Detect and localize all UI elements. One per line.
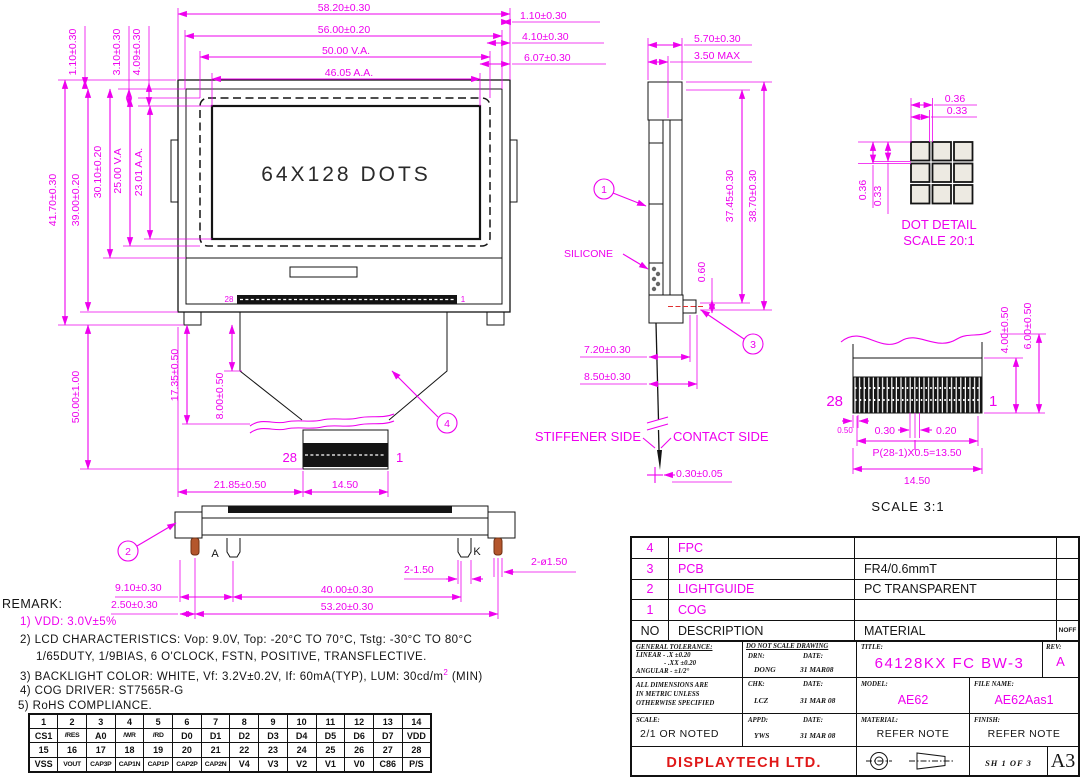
tolerance-title: GENERAL TOLERANCE: [636, 644, 712, 651]
model-cell: MODEL: AE62 [857, 678, 970, 714]
pin-cell: CAP1N [115, 757, 144, 772]
dim-fpc-width: 14.50 [904, 475, 930, 487]
rev-label: REV: [1046, 644, 1061, 651]
bom-header-row: NO DESCRIPTION MATERIAL NOFF [632, 621, 1078, 642]
rev-value: A [1043, 654, 1078, 669]
pin-cell: 9 [259, 714, 288, 729]
pin-cell: 11 [316, 714, 345, 729]
fpc-detail: 28 1 4.00±0.50 6.00±0.50 0.50 0.30 0.20 … [826, 303, 1046, 514]
pin-cell: 1 [29, 714, 58, 729]
pin-cell: 6 [173, 714, 202, 729]
pin-cell: V4 [230, 757, 259, 772]
pin-cell: 4 [115, 714, 144, 729]
bom-header-description: DESCRIPTION [669, 621, 855, 640]
callout-2: 2 [125, 546, 131, 558]
bond-pin-1: 1 [461, 295, 466, 304]
dim-tail-8: 8.00±0.50 [214, 373, 226, 420]
pin-cell: CAP3P [86, 757, 115, 772]
front-view-dimensions: 58.20±0.30 56.00±0.20 50.00 V.A. 46.05 A… [47, 2, 606, 497]
pin-cell: 10 [287, 714, 316, 729]
bom-description: COG [669, 600, 855, 620]
dim-va-height: 25.00 V.A [112, 148, 124, 193]
dim-dot-width-v: 0.33 [872, 186, 884, 207]
bom-qty [1057, 580, 1078, 600]
metric-note-3: OTHERWISE SPECIFIED [636, 700, 714, 707]
pin-cell: 26 [345, 743, 374, 757]
chk-date-label: DATE: [803, 681, 823, 688]
pin-cell: 12 [345, 714, 374, 729]
dim-8p50: 8.50±0.30 [584, 371, 631, 383]
dim-tail-17: 17.35±0.50 [169, 349, 181, 402]
dim-37p45: 37.45±0.30 [724, 170, 736, 223]
dim-overall-height: 41.70±0.30 [47, 174, 59, 227]
finish-value: REFER NOTE [970, 728, 1078, 740]
bom-no: 2 [632, 580, 669, 600]
dim-fpc-pin-width: 0.30 [875, 425, 896, 437]
pin-cell: 18 [115, 743, 144, 757]
drn-cell: DO NOT SCALE DRAWING DRN: DATE: DONG 31 … [743, 642, 857, 678]
dim-40p00: 40.00±0.30 [321, 584, 374, 596]
dot-detail-title: DOT DETAIL [901, 217, 976, 232]
bom-description: LIGHTGUIDE [669, 580, 855, 600]
pin-cell: 7 [201, 714, 230, 729]
bom-material: FR4/0.6mmT [855, 559, 1057, 579]
material-value: REFER NOTE [857, 728, 969, 740]
company-name: DISPLAYTECH LTD. [632, 755, 856, 771]
remark-line-3: 3) BACKLIGHT COLOR: WHITE, Vf: 3.2V±0.2V… [20, 668, 483, 683]
bom-qty [1057, 538, 1078, 558]
appd-label: APPD: [748, 717, 768, 724]
fpc-pin-28-detail: 28 [826, 393, 843, 410]
dim-6p07: 6.07±0.30 [524, 52, 571, 64]
dim-0p60: 0.60 [696, 262, 708, 283]
dim-fpc-4: 4.00±0.50 [999, 307, 1011, 354]
bom-header-no: NO [632, 621, 669, 640]
pin-assignment-table: 1234567891011121314 CS1/RESA0/WR/RDD0D1D… [28, 713, 432, 773]
bom-header-qty: NOFF [1057, 621, 1078, 640]
dim-overall-width: 58.20±0.30 [318, 2, 371, 14]
pin-cell: D4 [287, 729, 316, 743]
screen-area-label: 64X128 DOTS [261, 163, 431, 186]
paper-size: A3 [1048, 750, 1078, 773]
dot-detail-scale: SCALE 20:1 [903, 233, 975, 248]
silicone-dots [652, 267, 660, 291]
drn-date-value: 31 MAR08 [800, 665, 834, 674]
remark-line-4: 4) COG DRIVER: ST7565R-G [20, 685, 184, 697]
chk-value: LCZ [754, 696, 768, 705]
dim-4p10: 4.10±0.30 [522, 31, 569, 43]
dim-fpc-gap: 0.20 [936, 425, 957, 437]
pin-cell: D1 [201, 729, 230, 743]
pin-signal-row-2: VSSVOUTCAP3PCAP1NCAP1PCAP2PCAP2NV4V3V2V1… [29, 757, 431, 772]
pin-cell: 22 [230, 743, 259, 757]
dim-depth: 5.70±0.30 [694, 33, 741, 45]
bom-description: FPC [669, 538, 855, 558]
pin-cell: 8 [230, 714, 259, 729]
dim-boss-pin: 2-ø1.50 [531, 556, 567, 568]
pin-number-row-2: 1516171819202122232425262728 [29, 743, 431, 757]
remark-title: REMARK: [2, 597, 62, 611]
title-label: TITLE: [861, 644, 883, 651]
pin-cell: /WR [115, 729, 144, 743]
bom-table: 4 FPC 3 PCB FR4/0.6mmT 2 LIGHTGUIDE PC T… [632, 538, 1078, 642]
dim-dot-pitch-v: 0.36 [857, 180, 869, 201]
fpc-pin-1-detail: 1 [989, 393, 997, 410]
metric-note-2: IN METRIC UNLESS [636, 691, 699, 698]
pin-cell: /RD [144, 729, 173, 743]
dim-top-offset-2: 3.10±0.30 [111, 29, 123, 76]
pin-cell: 19 [144, 743, 173, 757]
pin-cell: 20 [173, 743, 202, 757]
bom-no: 1 [632, 600, 669, 620]
drn-value: DONG [754, 665, 776, 674]
file-name-value: AE62Aas1 [970, 693, 1078, 707]
dim-led-pin: 2-1.50 [404, 564, 434, 576]
pin-cell: 27 [373, 743, 402, 757]
pin-cell: V3 [259, 757, 288, 772]
dim-9p10: 9.10±0.30 [115, 582, 162, 594]
file-cell: FILE NAME: AE62Aas1 [970, 678, 1078, 714]
dim-thickness-max: 3.50 MAX [694, 50, 740, 62]
scale-label: SCALE: [636, 717, 660, 724]
bom-qty [1057, 600, 1078, 620]
file-name-label: FILE NAME: [974, 681, 1014, 688]
callout-3: 3 [750, 339, 756, 351]
dim-dot-width-h: 0.33 [947, 105, 968, 117]
pin-cell: 14 [402, 714, 431, 729]
pin-cell: 2 [58, 714, 87, 729]
dot-detail: 0.36 0.33 0.36 0.33 DOT DETAIL SCALE 20:… [857, 93, 977, 248]
pin-cell: V1 [316, 757, 345, 772]
dim-53p20: 53.20±0.30 [321, 601, 374, 613]
pin-cell: D0 [173, 729, 202, 743]
pin-cell: D6 [345, 729, 374, 743]
bom-material [855, 600, 1057, 620]
remark-line-1: 1) VDD: 3.0V±5% [20, 616, 117, 628]
metric-note-cell: ALL DIMENSIONS ARE IN METRIC UNLESS OTHE… [632, 678, 743, 714]
tolerance-linear: LINEAR - .X ±0.20 [636, 652, 691, 659]
pin-cell: 28 [402, 743, 431, 757]
scale-cell: SCALE: 2/1 OR NOTED [632, 714, 743, 747]
dim-38p70: 38.70±0.30 [747, 170, 759, 223]
dim-dot-pitch-h: 0.36 [945, 93, 966, 105]
appd-date-value: 31 MAR 08 [800, 731, 835, 740]
drn-date-label: DATE: [803, 653, 823, 660]
bom-row-pcb: 3 PCB FR4/0.6mmT [632, 559, 1078, 580]
remark-line-2b: 1/65DUTY, 1/9BIAS, 6 O'CLOCK, FSTN, POSI… [36, 651, 427, 663]
bom-description: PCB [669, 559, 855, 579]
dim-7p20: 7.20±0.30 [584, 344, 631, 356]
tolerance-angular: ANGULAR - ±1/2° [636, 668, 689, 675]
dim-fpc-pitch: P(28-1)X0.5=13.50 [872, 447, 961, 459]
dim-height-39: 39.00±0.20 [70, 174, 82, 227]
title-cell: TITLE: 64128KX FC BW-3 [857, 642, 1043, 678]
pin-cell: V2 [287, 757, 316, 772]
dim-fpc-6: 6.00±0.50 [1022, 303, 1034, 350]
title-block: GENERAL TOLERANCE: LINEAR - .X ±0.20 - .… [632, 642, 1078, 775]
sheet-number: SH 1 OF 3 [970, 758, 1047, 768]
silicone-label: SILICONE [564, 248, 613, 260]
tolerance-cell: GENERAL TOLERANCE: LINEAR - .X ±0.20 - .… [632, 642, 743, 678]
pin-cell: V0 [345, 757, 374, 772]
metric-note-1: ALL DIMENSIONS ARE [636, 682, 708, 689]
pin-cell: CAP1P [144, 757, 173, 772]
callout-1: 1 [601, 184, 607, 196]
dim-fpc-margin: 0.50 [837, 426, 853, 435]
drawing-title: 64128KX FC BW-3 [857, 655, 1042, 672]
fpc-pin-28: 28 [283, 450, 297, 465]
bom-material: PC TRANSPARENT [855, 580, 1057, 600]
appd-date-label: DATE: [803, 717, 823, 724]
do-not-scale-note: DO NOT SCALE DRAWING [746, 643, 828, 650]
pin-cell: CAP2P [173, 757, 202, 772]
finish-cell: FINISH: REFER NOTE [970, 714, 1078, 747]
dim-21p85: 21.85±0.50 [214, 479, 267, 491]
company-cell: DISPLAYTECH LTD. [632, 747, 857, 775]
dim-1p10: 1.10±0.30 [520, 10, 567, 22]
engineering-drawing-sheet: 64X128 DOTS 58.20±0.30 56.00±0.20 50.00 … [0, 0, 1080, 777]
dim-2p50: 2.50±0.30 [111, 599, 158, 611]
tolerance-linear-2: - .XX ±0.20 [664, 660, 696, 667]
chk-cell: CHK: DATE: LCZ 31 MAR 08 [743, 678, 857, 714]
bom-material [855, 538, 1057, 558]
pin-cell: 3 [86, 714, 115, 729]
bom-no: 3 [632, 559, 669, 579]
dim-top-offset-1: 1.10±0.30 [67, 29, 79, 76]
fpc-scale-label: SCALE 3:1 [871, 499, 944, 514]
pin-cell: 5 [144, 714, 173, 729]
pin-cell: /RES [58, 729, 87, 743]
pin-number-row-1: 1234567891011121314 [29, 714, 431, 729]
pin-cell: 21 [201, 743, 230, 757]
pin-cell: D5 [316, 729, 345, 743]
pin-cell: VOUT [58, 757, 87, 772]
dim-width-56: 56.00±0.20 [318, 24, 371, 36]
model-value: AE62 [857, 693, 969, 707]
callout-4: 4 [444, 418, 450, 430]
bom-row-cog: 1 COG [632, 600, 1078, 621]
contact-side-label: CONTACT SIDE [673, 429, 769, 444]
projection-cell [857, 747, 970, 775]
bom-header-material: MATERIAL [855, 621, 1057, 640]
third-angle-projection-icon [857, 747, 970, 775]
bond-pin-28: 28 [225, 295, 234, 304]
bom-row-fpc: 4 FPC [632, 538, 1078, 559]
bom-row-lightguide: 2 LIGHTGUIDE PC TRANSPARENT [632, 580, 1078, 601]
pin-cell: VDD [402, 729, 431, 743]
pin-cell: VSS [29, 757, 58, 772]
pin-cell: 16 [58, 743, 87, 757]
drn-label: DRN: [748, 653, 765, 660]
chk-label: CHK: [748, 681, 765, 688]
pin-cell: D3 [259, 729, 288, 743]
stiffener-side-label: STIFFENER SIDE [535, 429, 642, 444]
anode-label: A [211, 548, 219, 560]
pin-cell: P/S [402, 757, 431, 772]
pin-cell: 13 [373, 714, 402, 729]
dim-tail-height: 50.00±1.00 [70, 371, 82, 424]
appd-value: YWS [754, 731, 769, 740]
pin-cell: 23 [259, 743, 288, 757]
remark-line-2: 2) LCD CHARACTERISTICS: Vop: 9.0V, Top: … [20, 634, 472, 646]
pin-cell: D2 [230, 729, 259, 743]
material-cell: MATERIAL: REFER NOTE [857, 714, 970, 747]
remark-line-3-text: 3) BACKLIGHT COLOR: WHITE, Vf: 3.2V±0.2V… [20, 671, 443, 683]
finish-label: FINISH: [974, 717, 1000, 724]
pin-cell: CS1 [29, 729, 58, 743]
dim-tip-thickness: 0.30±0.05 [676, 468, 723, 480]
pin-cell: 15 [29, 743, 58, 757]
pin-cell: CAP2N [201, 757, 230, 772]
bom-and-title-block: 4 FPC 3 PCB FR4/0.6mmT 2 LIGHTGUIDE PC T… [630, 536, 1080, 777]
dim-top-offset-3: 4.09±0.30 [131, 29, 143, 76]
side-view-dimensions: 5.70±0.30 3.50 MAX 37.45±0.30 38.70±0.30… [535, 33, 772, 483]
pin-cell: 17 [86, 743, 115, 757]
dim-height-30: 30.10±0.20 [92, 146, 104, 199]
pin-cell: D7 [373, 729, 402, 743]
fpc-pin-1: 1 [396, 450, 403, 465]
sheet-cell: SH 1 OF 3 [970, 747, 1048, 775]
dim-va-width: 50.00 V.A. [322, 45, 370, 57]
rev-cell: REV: A [1043, 642, 1078, 678]
dim-aa-width: 46.05 A.A. [325, 67, 373, 79]
paper-size-cell: A3 [1048, 747, 1078, 775]
bom-no: 4 [632, 538, 669, 558]
chk-date-value: 31 MAR 08 [800, 696, 835, 705]
remark-line-5: 5) RoHS COMPLIANCE. [18, 700, 152, 712]
pin-cell: C86 [373, 757, 402, 772]
dim-aa-height: 23.01 A.A. [133, 148, 145, 196]
scale-value: 2/1 OR NOTED [640, 728, 719, 740]
model-label: MODEL: [861, 681, 888, 688]
bom-qty [1057, 559, 1078, 579]
material-label: MATERIAL: [861, 717, 898, 724]
pin-cell: 25 [316, 743, 345, 757]
pin-cell: A0 [86, 729, 115, 743]
pin-signal-row-1: CS1/RESA0/WR/RDD0D1D2D3D4D5D6D7VDD [29, 729, 431, 743]
dim-14p50: 14.50 [332, 479, 358, 491]
appd-cell: APPD: DATE: YWS 31 MAR 08 [743, 714, 857, 747]
pin-cell: 24 [287, 743, 316, 757]
cathode-label: K [473, 546, 481, 558]
bottom-view: 2 A K 2-1.50 2-ø1.50 9.10±0.30 40.00±0.3… [111, 506, 576, 619]
remark-line-3-tail: (MIN) [448, 671, 482, 683]
